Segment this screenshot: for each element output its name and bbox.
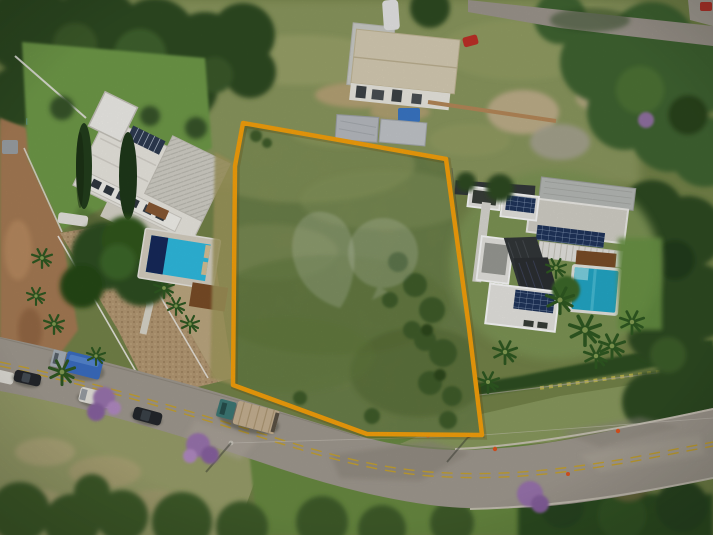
aerial-photo-canvas bbox=[0, 0, 713, 535]
vignette bbox=[0, 0, 713, 535]
aerial-photo bbox=[0, 0, 713, 535]
